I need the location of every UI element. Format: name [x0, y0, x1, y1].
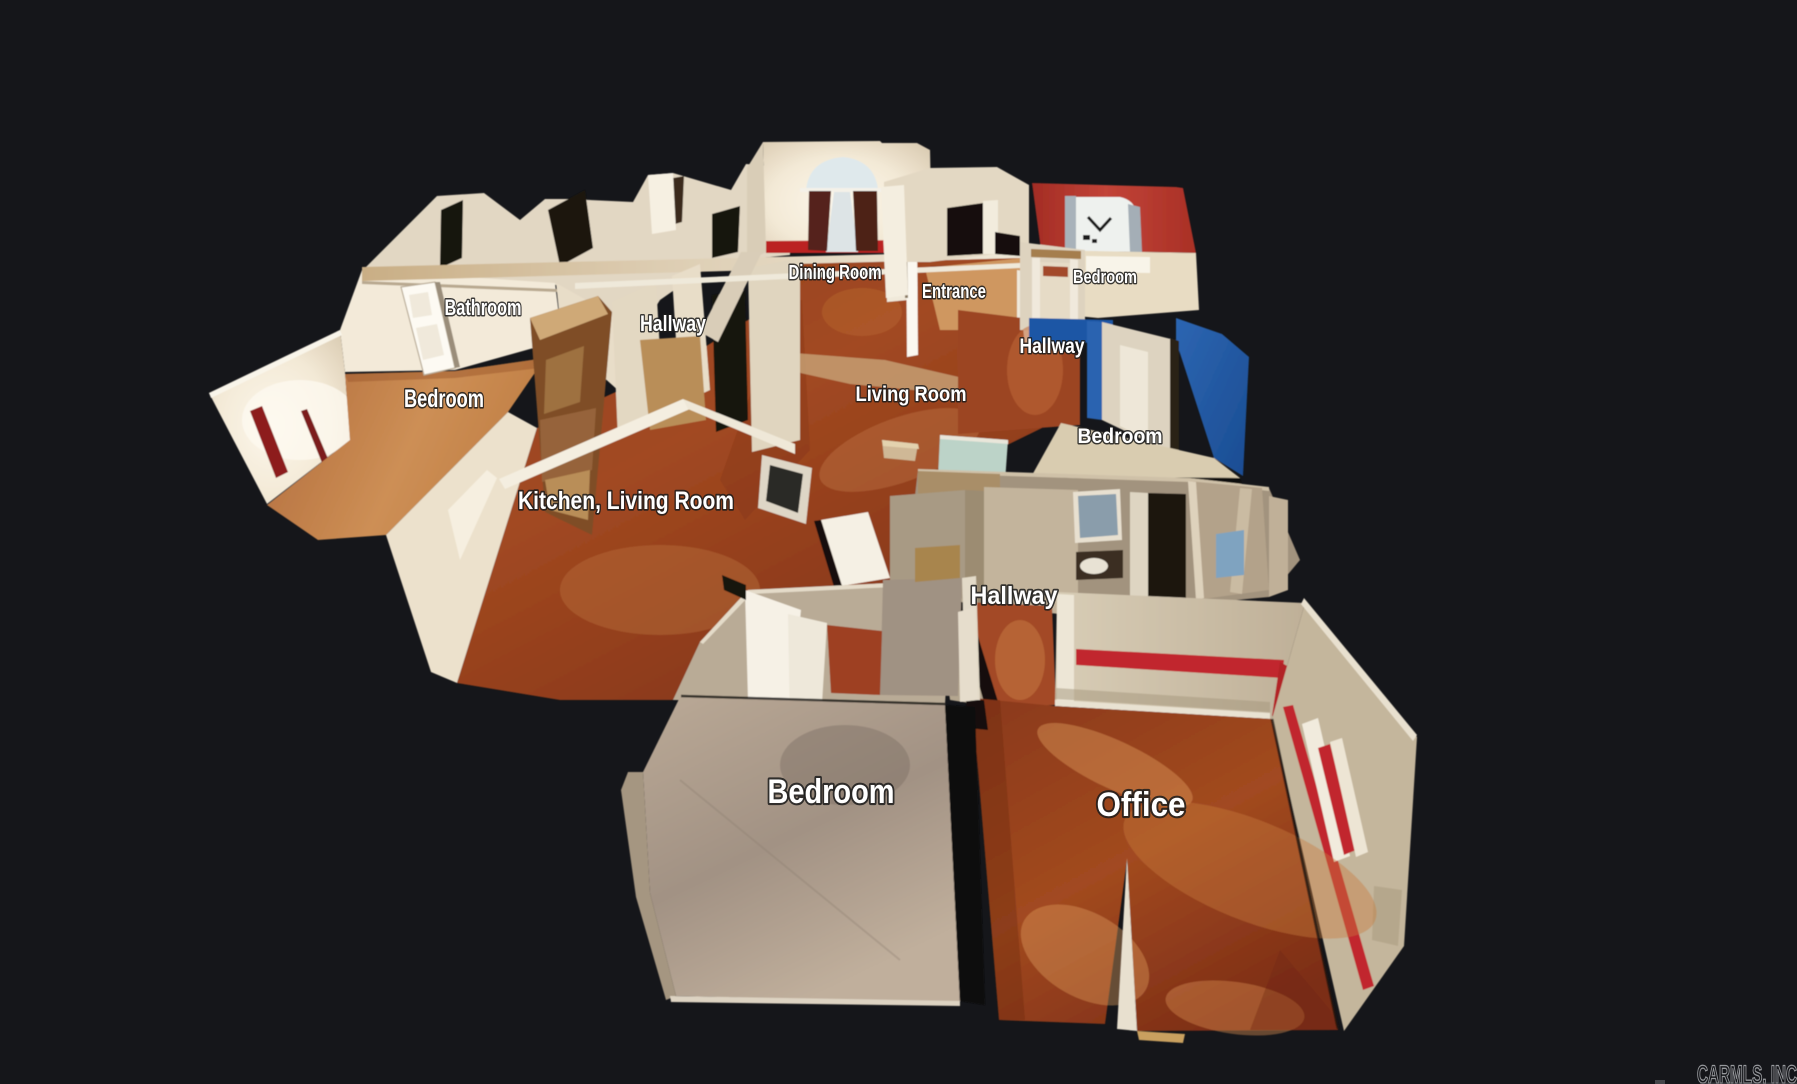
svg-text:CARMLS, INC: CARMLS, INC	[1697, 1061, 1797, 1084]
svg-text:Hallway: Hallway	[1020, 335, 1085, 358]
svg-text:Bedroom: Bedroom	[404, 385, 484, 413]
svg-text:Bedroom: Bedroom	[768, 773, 895, 811]
svg-text:Living Room: Living Room	[856, 383, 967, 406]
svg-text:Bedroom: Bedroom	[1073, 267, 1137, 287]
svg-text:Entrance: Entrance	[922, 281, 986, 303]
svg-text:Hallway: Hallway	[971, 582, 1058, 610]
svg-text:Dining Room: Dining Room	[789, 262, 882, 284]
svg-text:Hallway: Hallway	[640, 311, 707, 336]
svg-text:Bedroom: Bedroom	[1078, 425, 1163, 448]
svg-text:Bathroom: Bathroom	[445, 295, 522, 320]
svg-text:Kitchen, Living Room: Kitchen, Living Room	[518, 487, 734, 515]
svg-text:Office: Office	[1097, 786, 1186, 824]
